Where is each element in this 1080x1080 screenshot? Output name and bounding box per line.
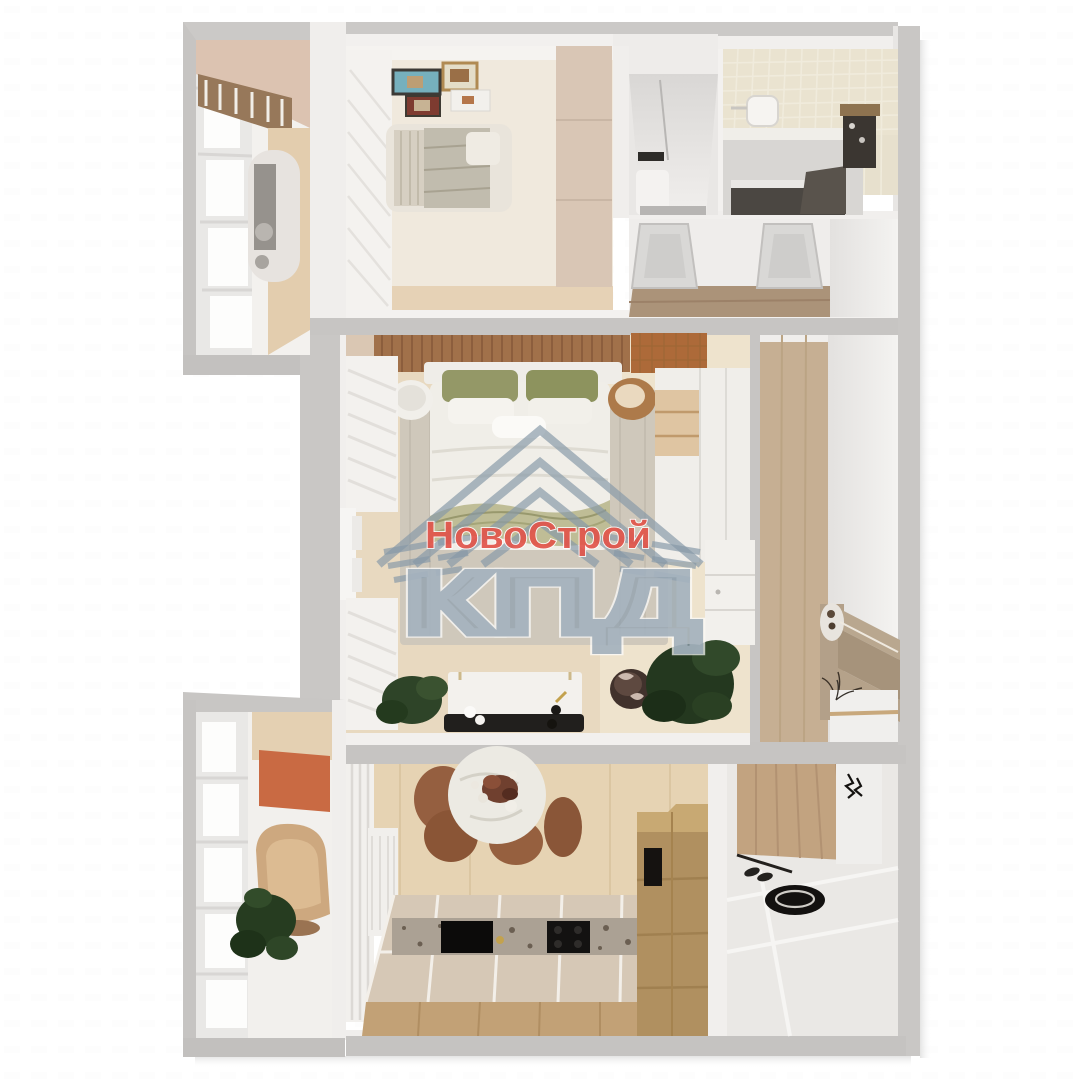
svg-text:НовоСтрой: НовоСтрой <box>425 515 651 557</box>
svg-text:КПД: КПД <box>404 553 700 652</box>
